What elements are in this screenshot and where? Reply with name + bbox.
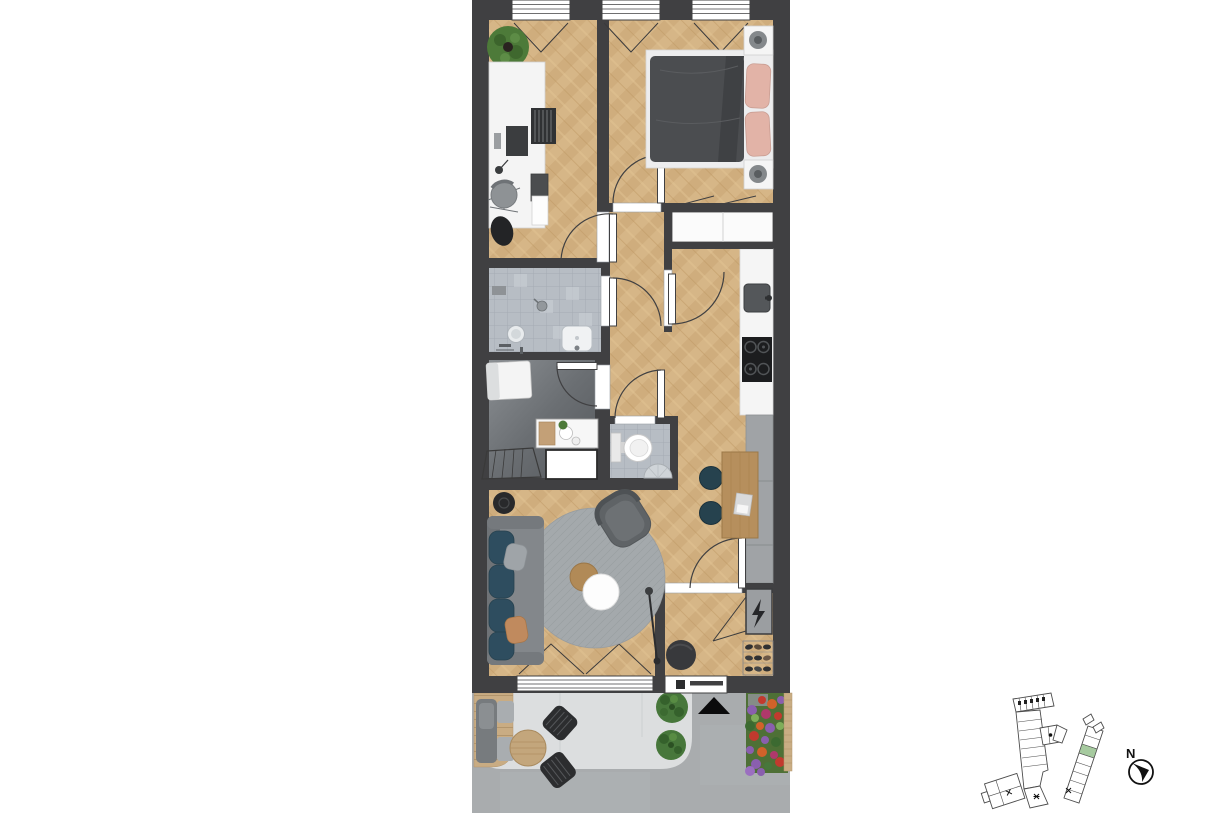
shoe-rack (743, 641, 773, 675)
washbasin (562, 326, 592, 351)
compass: N (1126, 746, 1153, 784)
nightstand (744, 160, 773, 189)
site-detached-building (979, 773, 1025, 810)
pillow (745, 111, 771, 156)
shrub (656, 730, 686, 760)
side-table (493, 492, 515, 514)
round-mirror (508, 326, 525, 343)
pouf (666, 640, 696, 670)
dining-chair (700, 467, 723, 490)
pillow (745, 63, 771, 108)
shelving-unit (531, 108, 556, 144)
page: N (0, 0, 1220, 813)
flower-bed (745, 693, 788, 776)
coffee-table-white (583, 574, 619, 610)
fence-strip (784, 693, 792, 771)
toilet (611, 433, 652, 462)
nightstand (744, 26, 773, 55)
counter-top (486, 361, 532, 400)
kitchen-counter (740, 249, 773, 415)
kitchen-sink (744, 284, 772, 312)
keyboard (494, 133, 501, 149)
bistro-table (510, 730, 546, 766)
side-box (532, 196, 548, 225)
shelf-unit (536, 419, 598, 448)
pavement-patch (500, 772, 650, 813)
shrub (656, 691, 688, 723)
floor-plan-svg: N (0, 0, 1220, 813)
hall-closet (672, 212, 773, 242)
sofa (487, 516, 544, 665)
site-plan (979, 693, 1104, 811)
dining-chair (700, 502, 723, 525)
laptop (734, 493, 753, 516)
cooktop (742, 337, 772, 382)
washing-machine (546, 450, 597, 479)
entrance-door (665, 676, 727, 693)
terrace (472, 691, 792, 813)
compass-north-label: N (1126, 746, 1135, 761)
towel (492, 286, 506, 295)
apartment (472, 0, 790, 693)
monitor (506, 126, 528, 156)
